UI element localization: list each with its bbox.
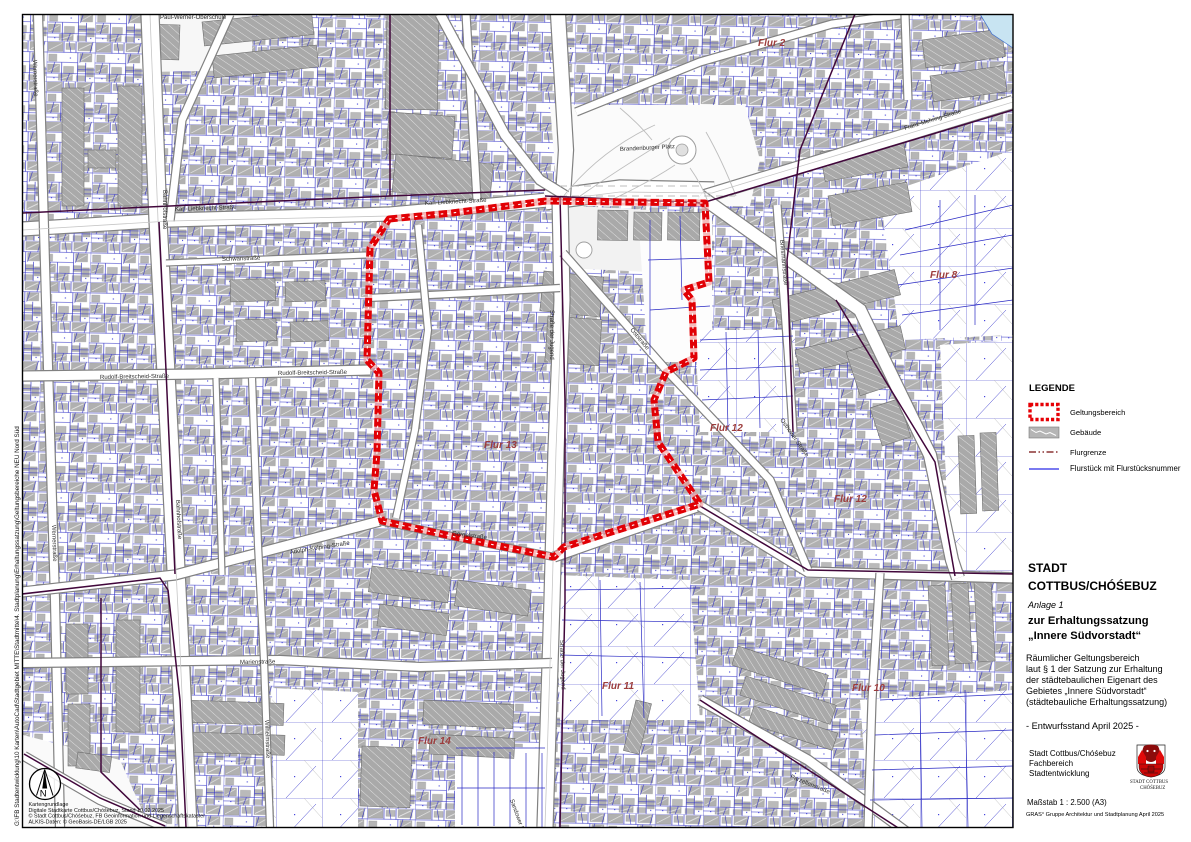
svg-text:N: N [40, 789, 47, 800]
svg-text:Stadt Cottbus/Chóśebuz: Stadt Cottbus/Chóśebuz [1029, 749, 1116, 758]
svg-text:Gebäude: Gebäude [1070, 428, 1101, 437]
svg-text:zur Erhaltungssatzung: zur Erhaltungssatzung [1028, 615, 1149, 627]
svg-text:Flurstück mit Flurstücksnummer: Flurstück mit Flurstücksnummer [1070, 464, 1181, 473]
svg-text:Flur 10: Flur 10 [852, 683, 885, 694]
svg-text:LEGENDE: LEGENDE [1029, 383, 1075, 394]
svg-text:GRAS° Gruppe Architektur und S: GRAS° Gruppe Architektur und Stadtplanun… [1026, 812, 1164, 818]
svg-text:- Entwurfsstand April 2025 -: - Entwurfsstand April 2025 - [1026, 721, 1139, 731]
svg-text:STADT: STADT [1028, 561, 1068, 575]
svg-text:Maßstab 1 : 2.500 (A3): Maßstab 1 : 2.500 (A3) [1027, 798, 1107, 807]
svg-text:COTTBUS/CHÓŚEBUZ: COTTBUS/CHÓŚEBUZ [1028, 578, 1157, 593]
svg-text:Flur 2: Flur 2 [758, 38, 786, 49]
svg-text:Flur 12: Flur 12 [834, 494, 867, 505]
svg-text:Anlage 1: Anlage 1 [1027, 600, 1064, 610]
svg-text:STADT COTTBUS: STADT COTTBUS [1130, 780, 1168, 785]
svg-text:Bahnhofstraße: Bahnhofstraße [161, 190, 167, 230]
svg-text:G:\FB Stadtentwicklung\10 Kart: G:\FB Stadtentwicklung\10 Karten\AutoCad… [14, 426, 21, 826]
svg-text:Fachbereich: Fachbereich [1029, 759, 1073, 768]
svg-text:„Innere Südvorstadt“: „Innere Südvorstadt“ [1028, 630, 1141, 642]
svg-text:Flur 14: Flur 14 [418, 736, 451, 747]
svg-text:Flur 13: Flur 13 [484, 440, 517, 451]
svg-text:Gebietes „Innere Südvorstadt“: Gebietes „Innere Südvorstadt“ [1026, 686, 1147, 696]
svg-text:Straße der Jugend: Straße der Jugend [548, 310, 554, 360]
svg-text:Rudolf-Breitscheid-Straße: Rudolf-Breitscheid-Straße [100, 374, 170, 381]
svg-text:Flur 8: Flur 8 [930, 270, 958, 281]
svg-text:Rudolf-Breitscheid-Straße: Rudolf-Breitscheid-Straße [278, 370, 348, 377]
svg-text:CHÓŚEBUZ: CHÓŚEBUZ [1140, 785, 1165, 791]
svg-text:(städtebauliche Erhaltungssatz: (städtebauliche Erhaltungssatzung) [1026, 697, 1167, 707]
svg-text:Flur 11: Flur 11 [602, 681, 634, 692]
svg-text:Flurgrenze: Flurgrenze [1070, 448, 1106, 457]
svg-text:Geltungsbereich: Geltungsbereich [1070, 408, 1125, 417]
svg-text:ALKIS-Daten: © GeoBasis-DE/LGB: ALKIS-Daten: © GeoBasis-DE/LGB 2025 [29, 818, 127, 825]
svg-text:Marienstraße: Marienstraße [240, 659, 276, 666]
svg-text:Räumlicher Geltungsbereich: Räumlicher Geltungsbereich [1026, 653, 1140, 663]
svg-text:laut § 1 der Satzung zur Erhal: laut § 1 der Satzung zur Erhaltung [1026, 664, 1163, 674]
svg-text:der städtebaulichen Eigenart d: der städtebaulichen Eigenart des [1026, 675, 1158, 685]
svg-text:Flur 12: Flur 12 [710, 423, 743, 434]
svg-text:Paul-Werner-Oberschule: Paul-Werner-Oberschule [160, 15, 227, 21]
svg-text:Stadtentwicklung: Stadtentwicklung [1029, 769, 1089, 778]
